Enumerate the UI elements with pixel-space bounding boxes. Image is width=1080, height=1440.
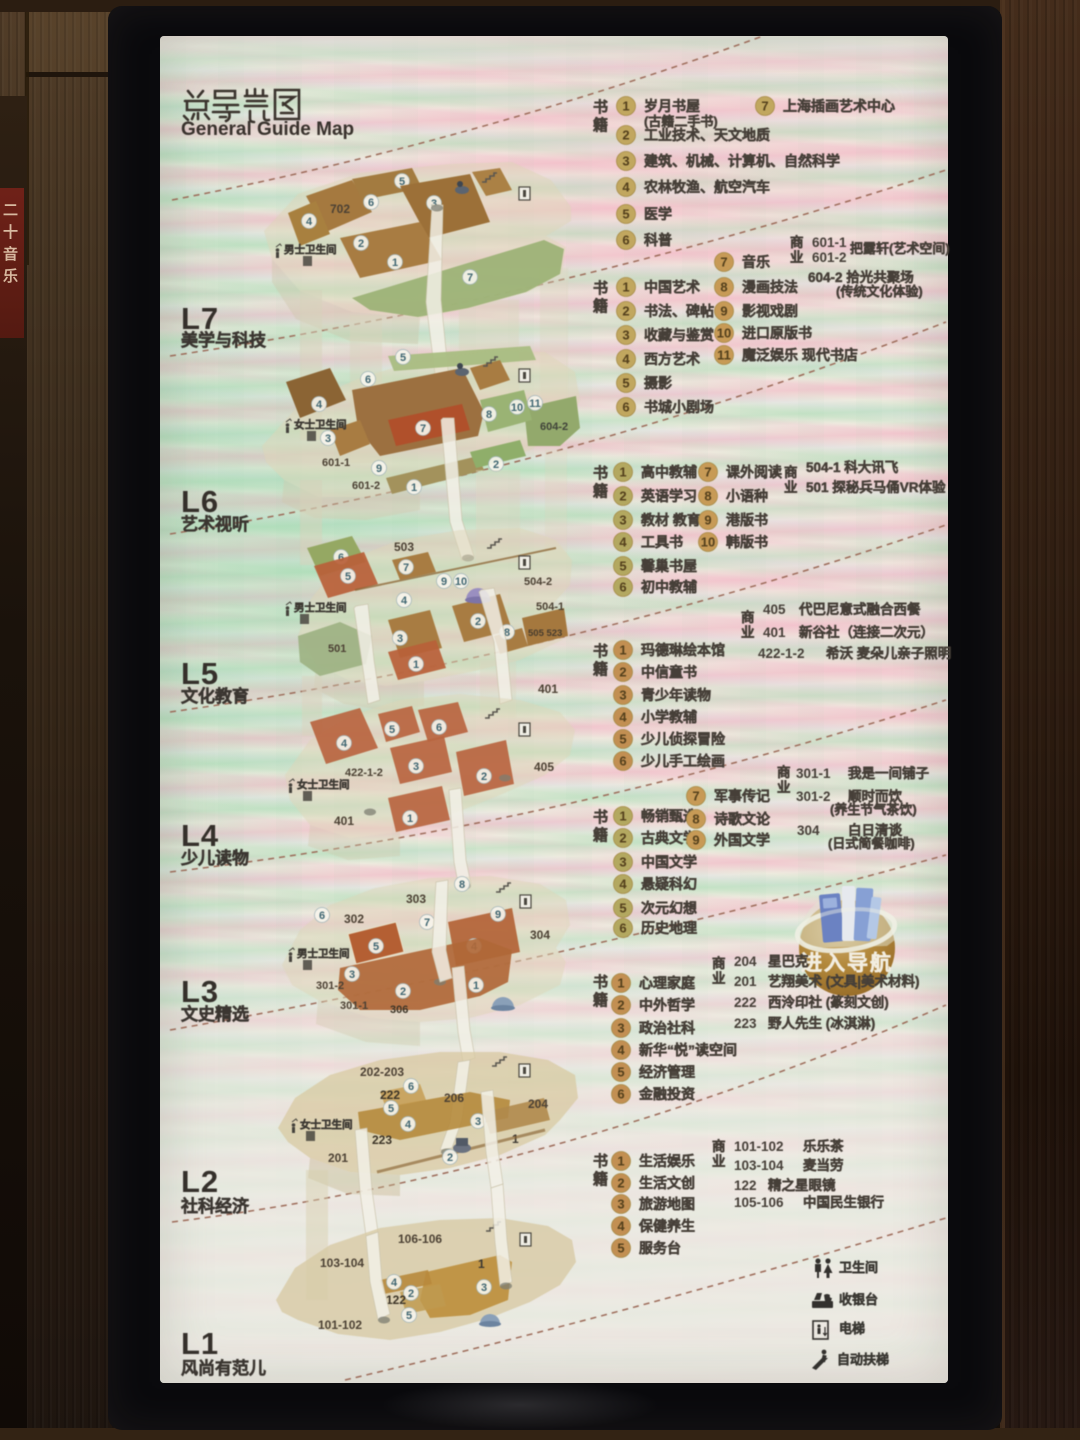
svg-text:把露轩(艺术空间): 把露轩(艺术空间)	[850, 241, 950, 256]
svg-text:5: 5	[345, 571, 351, 583]
svg-text:韩版书: 韩版书	[726, 534, 768, 550]
svg-text:文史精选: 文史精选	[181, 1004, 249, 1024]
svg-text:2: 2	[358, 238, 364, 250]
svg-text:商: 商	[790, 234, 804, 250]
svg-text:501: 501	[328, 643, 346, 655]
svg-text:我是一间铺子: 我是一间铺子	[848, 765, 929, 781]
svg-text:中国民生银行: 中国民生银行	[803, 1194, 884, 1210]
svg-text:1: 1	[413, 659, 419, 671]
svg-text:3: 3	[619, 688, 626, 703]
svg-text:4: 4	[619, 535, 627, 550]
svg-text:业: 业	[712, 971, 726, 986]
svg-text:3: 3	[397, 633, 403, 645]
svg-text:业: 业	[741, 625, 755, 640]
svg-text:3: 3	[475, 1116, 481, 1128]
svg-text:1: 1	[617, 976, 624, 991]
svg-text:商: 商	[741, 609, 755, 625]
svg-text:7: 7	[403, 562, 409, 574]
svg-text:301-2: 301-2	[316, 980, 344, 992]
svg-text:1: 1	[392, 257, 398, 269]
svg-text:105-106: 105-106	[734, 1195, 784, 1210]
svg-text:103-104: 103-104	[320, 1256, 364, 1270]
svg-text:(传统文化体验): (传统文化体验)	[836, 284, 923, 299]
svg-text:小学教辅: 小学教辅	[641, 709, 697, 725]
svg-text:223: 223	[734, 1016, 757, 1031]
svg-text:4: 4	[617, 1219, 625, 1234]
svg-text:1: 1	[619, 809, 626, 824]
svg-text:11: 11	[717, 348, 731, 363]
svg-text:501 探秘兵马俑VR体验: 501 探秘兵马俑VR体验	[806, 479, 946, 495]
svg-text:美学与科技: 美学与科技	[181, 330, 267, 350]
svg-text:女士卫生间: 女士卫生间	[297, 778, 350, 791]
svg-text:204: 204	[528, 1097, 548, 1111]
svg-text:201: 201	[734, 974, 757, 989]
svg-text:6: 6	[617, 1087, 624, 1102]
svg-text:麦当劳: 麦当劳	[803, 1157, 844, 1173]
svg-text:书: 书	[593, 973, 608, 991]
svg-text:9: 9	[720, 304, 727, 319]
svg-text:(养生节气茶饮): (养生节气茶饮)	[830, 802, 917, 817]
svg-text:2: 2	[447, 1152, 453, 1164]
svg-text:5: 5	[406, 1310, 412, 1322]
svg-text:4: 4	[622, 180, 630, 195]
svg-text:2: 2	[493, 459, 499, 471]
svg-text:次元幻想: 次元幻想	[641, 900, 697, 916]
svg-text:2: 2	[481, 771, 487, 783]
svg-text:业: 业	[777, 780, 791, 795]
svg-text:9: 9	[692, 833, 699, 848]
svg-text:11: 11	[529, 398, 541, 410]
svg-text:L4: L4	[181, 818, 219, 853]
svg-text:2: 2	[619, 831, 626, 846]
svg-text:122: 122	[386, 1293, 406, 1307]
svg-text:商: 商	[784, 464, 798, 480]
svg-text:馨巢书屋: 馨巢书屋	[640, 558, 697, 574]
svg-text:302: 302	[344, 912, 364, 926]
svg-text:7: 7	[467, 272, 473, 284]
svg-text:304: 304	[797, 823, 820, 838]
svg-text:书城小剧场: 书城小剧场	[644, 399, 714, 415]
svg-text:收藏与鉴赏: 收藏与鉴赏	[644, 327, 714, 343]
svg-text:301-1: 301-1	[340, 1000, 368, 1012]
svg-text:6: 6	[622, 233, 629, 248]
svg-text:7: 7	[704, 465, 711, 480]
svg-text:7: 7	[761, 99, 768, 114]
svg-text:4: 4	[405, 1119, 412, 1131]
svg-text:222: 222	[380, 1088, 400, 1102]
svg-text:工具书: 工具书	[641, 534, 683, 550]
svg-text:籍: 籍	[593, 826, 608, 844]
svg-text:3: 3	[617, 1021, 624, 1036]
svg-text:301-2: 301-2	[796, 789, 831, 804]
svg-text:5: 5	[617, 1241, 624, 1256]
svg-text:204: 204	[734, 954, 757, 969]
svg-text:文化教育: 文化教育	[181, 686, 249, 706]
svg-text:L1: L1	[181, 1326, 219, 1361]
svg-text:4: 4	[619, 710, 627, 725]
svg-text:304: 304	[530, 928, 550, 942]
svg-text:3: 3	[617, 1197, 624, 1212]
svg-text:希沃 麦朵儿亲子照明: 希沃 麦朵儿亲子照明	[826, 645, 951, 661]
svg-text:504-1: 504-1	[536, 601, 564, 613]
svg-text:书: 书	[593, 642, 608, 660]
svg-text:2: 2	[622, 304, 629, 319]
svg-text:小语种: 小语种	[726, 488, 768, 504]
svg-text:精之星眼镜: 精之星眼镜	[768, 1177, 836, 1193]
svg-text:401: 401	[334, 814, 354, 828]
svg-text:(日式简餐咖啡): (日式简餐咖啡)	[828, 836, 915, 851]
svg-text:英语学习: 英语学习	[640, 488, 697, 504]
svg-text:6: 6	[408, 1081, 414, 1093]
svg-text:漫画技法: 漫画技法	[742, 279, 798, 295]
svg-text:1: 1	[617, 1154, 624, 1169]
svg-text:籍: 籍	[593, 660, 608, 678]
svg-text:艺翔美术 (文具|美术材料): 艺翔美术 (文具|美术材料)	[768, 973, 920, 989]
svg-text:卫生间: 卫生间	[839, 1260, 878, 1275]
svg-text:10: 10	[455, 576, 467, 588]
svg-text:书: 书	[593, 98, 608, 116]
svg-text:电梯: 电梯	[839, 1321, 865, 1336]
svg-text:2: 2	[617, 998, 624, 1013]
svg-text:商: 商	[777, 764, 791, 780]
svg-text:西方艺术: 西方艺术	[644, 351, 700, 367]
svg-text:4: 4	[622, 352, 630, 367]
svg-text:岁月书屋: 岁月书屋	[644, 98, 700, 114]
svg-text:少儿手工绘画: 少儿手工绘画	[640, 753, 725, 769]
svg-text:上海插画艺术中心: 上海插画艺术中心	[783, 98, 895, 114]
svg-text:5: 5	[388, 1103, 394, 1115]
svg-text:5: 5	[619, 901, 626, 916]
svg-text:503: 503	[394, 540, 414, 554]
svg-text:L3: L3	[181, 974, 219, 1009]
svg-text:3: 3	[619, 855, 626, 870]
svg-text:702: 702	[330, 202, 350, 216]
svg-text:新谷社（连接二次元）: 新谷社（连接二次元）	[799, 624, 934, 640]
svg-text:601-1: 601-1	[812, 235, 847, 250]
svg-text:摄影: 摄影	[644, 375, 672, 391]
svg-text:422-1-2: 422-1-2	[758, 646, 805, 661]
svg-text:3: 3	[349, 969, 355, 981]
svg-text:女士卫生间: 女士卫生间	[300, 1118, 353, 1131]
svg-text:旅游地图: 旅游地图	[639, 1196, 695, 1212]
svg-text:405: 405	[763, 602, 786, 617]
svg-text:101-102: 101-102	[734, 1139, 784, 1154]
svg-text:业: 业	[790, 250, 804, 265]
svg-text:悬疑科幻: 悬疑科幻	[640, 876, 697, 892]
svg-text:5: 5	[400, 352, 406, 364]
svg-text:5: 5	[622, 376, 629, 391]
svg-text:106-106: 106-106	[398, 1232, 442, 1246]
svg-text:6: 6	[622, 400, 629, 415]
svg-text:港版书: 港版书	[726, 512, 768, 528]
svg-text:代巴尼意式融合西餐: 代巴尼意式融合西餐	[798, 601, 921, 617]
svg-text:初中教辅: 初中教辅	[641, 579, 697, 595]
svg-text:101-102: 101-102	[318, 1318, 362, 1332]
svg-text:4: 4	[619, 877, 627, 892]
svg-text:2: 2	[408, 1288, 414, 1300]
svg-text:8: 8	[486, 409, 492, 421]
svg-text:少儿侦探冒险: 少儿侦探冒险	[640, 731, 726, 747]
svg-text:604-2 拾光共聚场: 604-2 拾光共聚场	[808, 269, 914, 285]
svg-text:1: 1	[478, 1257, 485, 1271]
svg-text:202-203: 202-203	[360, 1065, 404, 1079]
svg-text:5: 5	[622, 207, 629, 222]
svg-text:中国艺术: 中国艺术	[644, 279, 700, 295]
svg-text:3: 3	[481, 1282, 487, 1294]
svg-text:收银台: 收银台	[839, 1292, 878, 1307]
svg-text:122: 122	[734, 1178, 757, 1193]
svg-text:2: 2	[617, 1176, 624, 1191]
svg-text:5: 5	[619, 559, 626, 574]
svg-text:405: 405	[534, 760, 554, 774]
svg-text:3: 3	[413, 761, 419, 773]
svg-text:服务台: 服务台	[639, 1240, 681, 1256]
svg-text:1: 1	[473, 980, 479, 992]
svg-text:303: 303	[406, 892, 426, 906]
svg-text:建筑、机械、计算机、自然科学: 建筑、机械、计算机、自然科学	[644, 153, 840, 169]
svg-text:601-1: 601-1	[322, 457, 350, 469]
svg-text:L2: L2	[181, 1164, 219, 1199]
svg-text:306: 306	[390, 1004, 408, 1016]
svg-text:1: 1	[619, 465, 626, 480]
svg-text:自动扶梯: 自动扶梯	[837, 1352, 889, 1367]
svg-text:7: 7	[692, 789, 699, 804]
svg-text:505 523: 505 523	[528, 628, 562, 639]
svg-text:8: 8	[720, 280, 727, 295]
svg-text:3: 3	[325, 433, 331, 445]
svg-text:籍: 籍	[593, 482, 608, 500]
svg-text:进口原版书: 进口原版书	[742, 325, 812, 341]
svg-text:业: 业	[712, 1154, 726, 1169]
svg-text:金融投资: 金融投资	[638, 1086, 695, 1102]
svg-text:10: 10	[701, 535, 715, 550]
svg-text:籍: 籍	[593, 1170, 608, 1188]
svg-text:1: 1	[407, 813, 413, 825]
svg-text:L6: L6	[181, 484, 219, 519]
svg-text:5: 5	[389, 724, 395, 736]
svg-text:5: 5	[619, 732, 626, 747]
svg-text:进入导航: 进入导航	[801, 951, 893, 975]
svg-text:书: 书	[593, 279, 608, 297]
svg-text:6: 6	[368, 197, 374, 209]
svg-text:103-104: 103-104	[734, 1158, 784, 1173]
svg-text:301-1: 301-1	[796, 766, 831, 781]
svg-text:504-1 科大讯飞: 504-1 科大讯飞	[806, 459, 899, 475]
svg-text:3: 3	[622, 328, 629, 343]
svg-text:9: 9	[704, 513, 711, 528]
svg-text:科普: 科普	[644, 232, 672, 248]
svg-text:军事传记: 军事传记	[714, 788, 770, 804]
svg-text:诗歌文论: 诗歌文论	[714, 811, 771, 827]
svg-text:心理家庭: 心理家庭	[639, 975, 696, 991]
svg-text:1: 1	[411, 482, 417, 494]
svg-text:业: 业	[784, 480, 798, 495]
svg-text:籍: 籍	[593, 116, 608, 134]
svg-text:玛德琳绘本馆: 玛德琳绘本馆	[641, 642, 725, 658]
svg-text:4: 4	[401, 595, 408, 607]
svg-text:经济管理: 经济管理	[639, 1064, 695, 1080]
svg-text:10: 10	[717, 326, 731, 341]
svg-text:农林牧渔、航空汽车: 农林牧渔、航空汽车	[643, 179, 770, 195]
svg-text:6: 6	[436, 722, 442, 734]
svg-text:政治社科: 政治社科	[639, 1020, 695, 1036]
svg-text:4: 4	[341, 738, 348, 750]
svg-text:商: 商	[712, 955, 726, 971]
svg-text:3: 3	[622, 154, 629, 169]
svg-text:201: 201	[328, 1151, 348, 1165]
svg-text:7: 7	[720, 255, 727, 270]
svg-text:少儿读物: 少儿读物	[180, 848, 249, 868]
svg-text:历史地理: 历史地理	[641, 920, 697, 936]
svg-text:中信童书: 中信童书	[641, 664, 697, 680]
svg-text:222: 222	[734, 995, 757, 1010]
svg-text:女士卫生间: 女士卫生间	[294, 418, 347, 431]
svg-text:书法、碑帖: 书法、碑帖	[644, 303, 714, 319]
svg-text:4: 4	[306, 216, 313, 228]
svg-text:504-2: 504-2	[524, 576, 552, 588]
svg-text:10: 10	[511, 402, 523, 414]
svg-text:籍: 籍	[593, 991, 608, 1009]
svg-text:604-2: 604-2	[540, 421, 568, 433]
svg-text:商: 商	[712, 1138, 726, 1154]
svg-text:8: 8	[459, 879, 465, 891]
svg-text:8: 8	[704, 489, 711, 504]
svg-text:6: 6	[619, 580, 626, 595]
svg-text:7: 7	[424, 917, 430, 929]
svg-text:L5: L5	[181, 656, 219, 691]
svg-text:书: 书	[593, 808, 608, 826]
svg-text:9: 9	[495, 909, 501, 921]
svg-text:401: 401	[538, 682, 558, 696]
svg-text:223: 223	[372, 1133, 392, 1147]
svg-text:生活文创: 生活文创	[639, 1175, 695, 1191]
svg-text:3: 3	[619, 513, 626, 528]
svg-text:2: 2	[475, 616, 481, 628]
svg-text:401: 401	[763, 625, 786, 640]
svg-text:2: 2	[619, 489, 626, 504]
svg-text:男士卫生间: 男士卫生间	[294, 601, 347, 614]
svg-text:5: 5	[617, 1065, 624, 1080]
svg-text:4: 4	[316, 399, 323, 411]
svg-text:(古籍二手书): (古籍二手书)	[644, 114, 718, 129]
svg-text:男士卫生间: 男士卫生间	[284, 243, 337, 256]
svg-text:9: 9	[376, 463, 382, 475]
svg-text:206: 206	[444, 1091, 464, 1105]
svg-text:保健养生: 保健养生	[638, 1218, 695, 1234]
svg-text:9: 9	[441, 576, 447, 588]
svg-text:4: 4	[617, 1043, 625, 1058]
svg-text:2: 2	[622, 128, 629, 143]
svg-text:422-1-2: 422-1-2	[345, 767, 383, 779]
svg-text:1: 1	[622, 280, 629, 295]
svg-text:General Guide Map: General Guide Map	[181, 119, 354, 140]
svg-text:魔泛娱乐 现代书店: 魔泛娱乐 现代书店	[742, 347, 858, 363]
svg-text:星巴克: 星巴克	[768, 953, 809, 969]
svg-text:6: 6	[319, 910, 325, 922]
svg-text:6: 6	[619, 921, 626, 936]
svg-text:野人先生 (冰淇淋): 野人先生 (冰淇淋)	[768, 1015, 875, 1031]
svg-text:籍: 籍	[593, 297, 608, 315]
svg-text:风尚有范儿: 风尚有范儿	[181, 1358, 266, 1378]
svg-text:601-2: 601-2	[812, 250, 847, 265]
svg-text:8: 8	[692, 812, 699, 827]
svg-text:中国文学: 中国文学	[641, 854, 697, 870]
svg-text:西泠印社 (篆刻文创): 西泠印社 (篆刻文创)	[768, 994, 889, 1010]
svg-text:书: 书	[593, 464, 608, 482]
svg-text:影视戏剧: 影视戏剧	[742, 303, 798, 319]
svg-text:新华“悦”读空间: 新华“悦”读空间	[639, 1042, 737, 1058]
svg-text:601-2: 601-2	[352, 480, 380, 492]
svg-text:社科经济: 社科经济	[180, 1196, 250, 1216]
svg-text:音乐: 音乐	[742, 254, 770, 270]
svg-text:2: 2	[619, 665, 626, 680]
svg-text:7: 7	[420, 423, 426, 435]
svg-text:课外阅读: 课外阅读	[726, 464, 782, 480]
svg-text:男士卫生间: 男士卫生间	[297, 947, 350, 960]
svg-text:艺术视听: 艺术视听	[181, 514, 249, 534]
svg-text:4: 4	[391, 1277, 398, 1289]
svg-text:5: 5	[373, 941, 379, 953]
svg-text:6: 6	[365, 374, 371, 386]
svg-text:2: 2	[400, 986, 406, 998]
svg-text:书: 书	[593, 1152, 608, 1170]
svg-text:乐乐茶: 乐乐茶	[803, 1138, 844, 1154]
svg-text:生活娱乐: 生活娱乐	[639, 1153, 695, 1169]
svg-text:外国文学: 外国文学	[714, 832, 770, 848]
svg-text:中外哲学: 中外哲学	[639, 997, 695, 1013]
svg-text:青少年读物: 青少年读物	[641, 687, 711, 703]
svg-text:高中教辅: 高中教辅	[641, 464, 697, 480]
svg-text:6: 6	[619, 754, 626, 769]
svg-text:医学: 医学	[644, 206, 672, 222]
svg-text:1: 1	[619, 643, 626, 658]
svg-text:工业技术、天文地质: 工业技术、天文地质	[644, 127, 770, 143]
svg-text:1: 1	[622, 99, 629, 114]
